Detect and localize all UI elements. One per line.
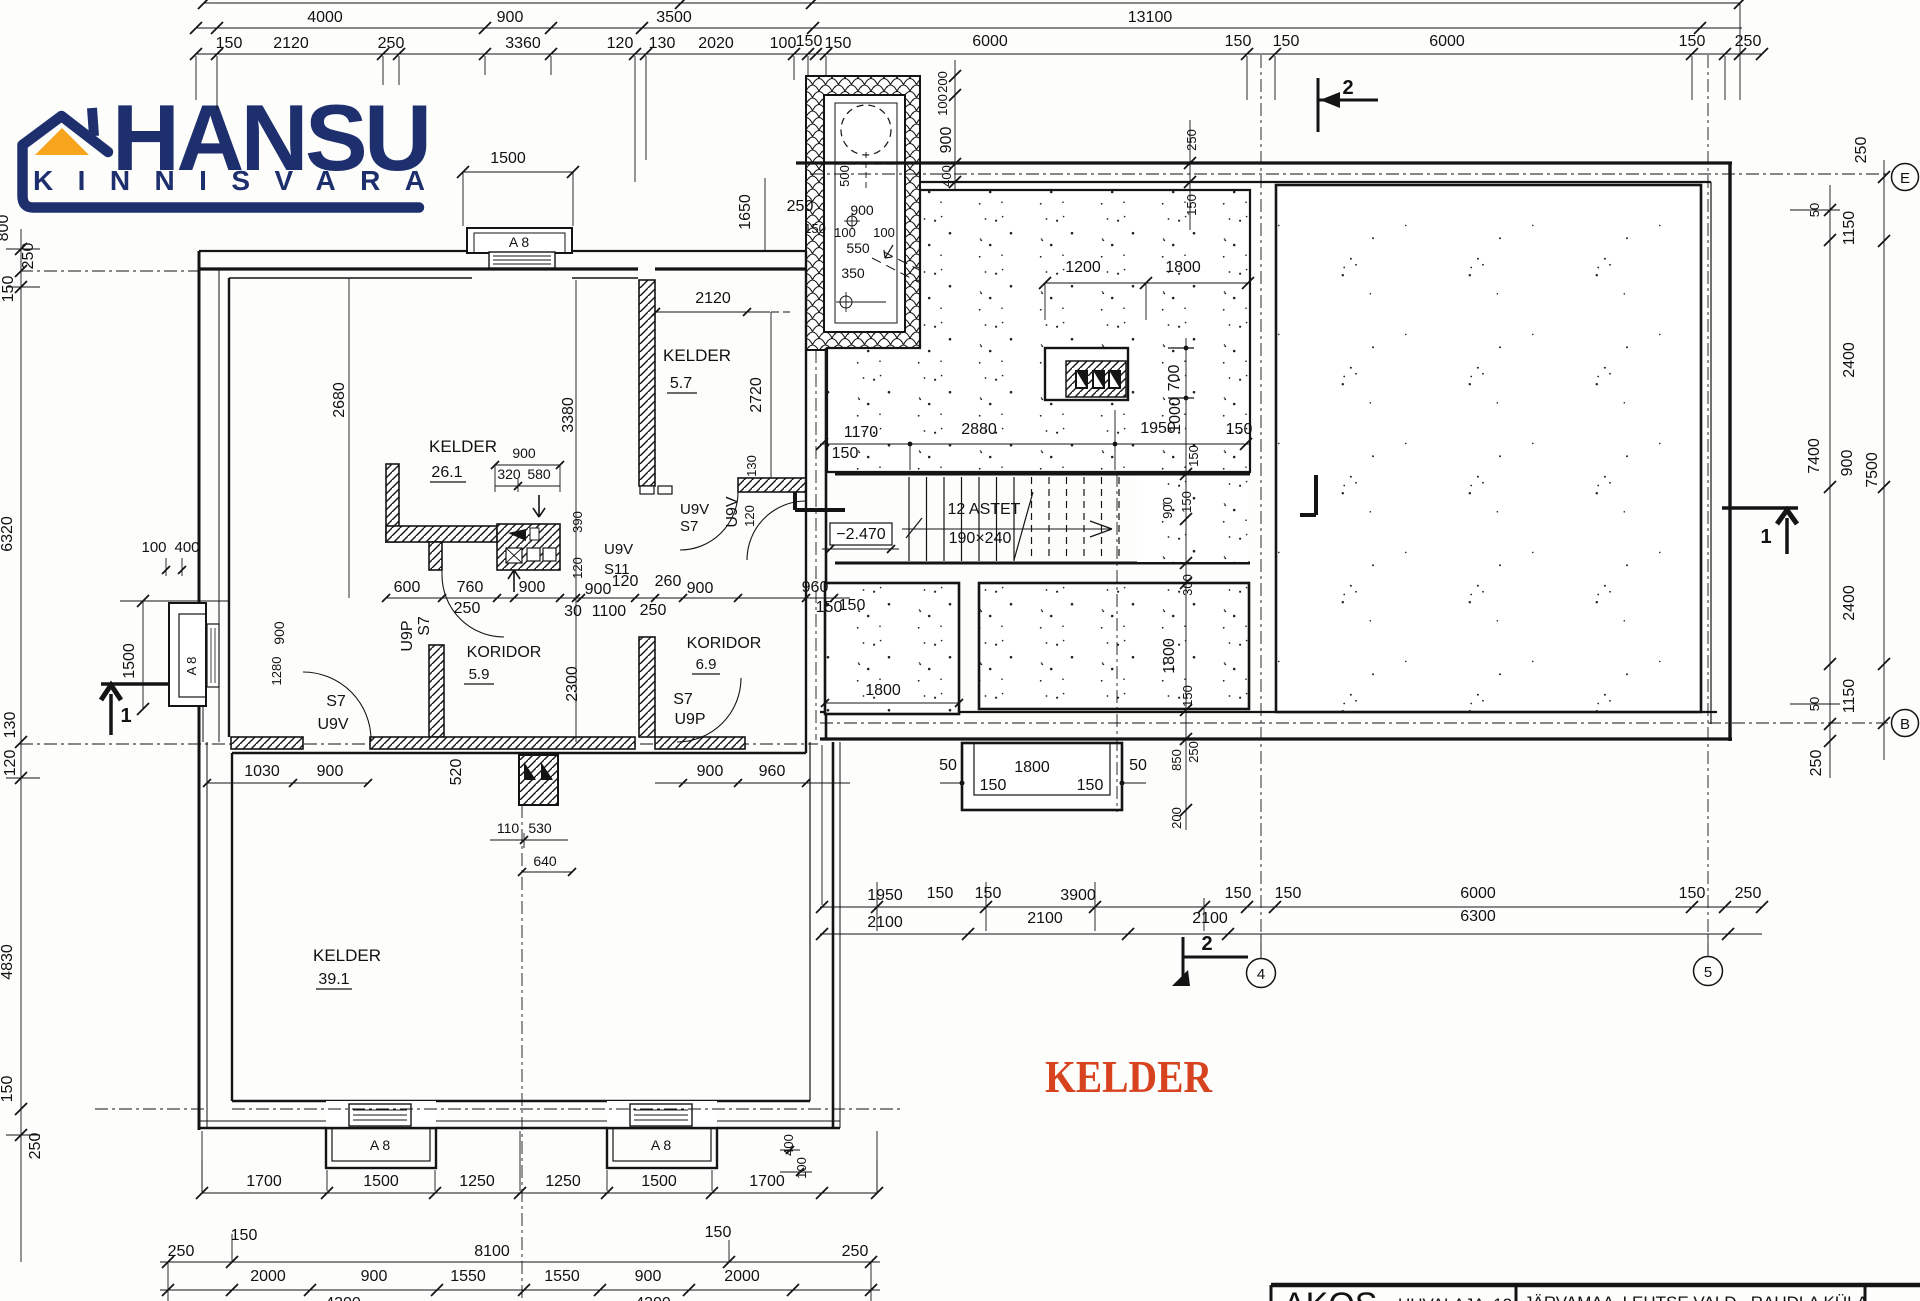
svg-text:150: 150 (231, 1227, 258, 1244)
svg-text:900: 900 (512, 445, 536, 461)
svg-text:120: 120 (742, 505, 757, 527)
svg-text:2000: 2000 (250, 1268, 286, 1285)
svg-text:2720: 2720 (748, 377, 765, 413)
svg-text:1: 1 (120, 705, 131, 727)
svg-text:1800: 1800 (1161, 638, 1178, 674)
svg-text:960: 960 (759, 763, 786, 780)
svg-text:KELDER: KELDER (313, 946, 381, 965)
svg-text:3900: 3900 (1060, 887, 1096, 904)
svg-text:760: 760 (457, 579, 484, 596)
svg-text:2100: 2100 (1192, 910, 1228, 927)
svg-text:150: 150 (1186, 445, 1201, 467)
svg-text:6320: 6320 (0, 516, 16, 552)
svg-text:2400: 2400 (1841, 585, 1858, 621)
svg-text:300: 300 (1180, 574, 1195, 596)
svg-text:260: 260 (655, 573, 682, 590)
svg-text:2120: 2120 (273, 35, 309, 52)
svg-text:130: 130 (649, 35, 676, 52)
svg-text:120: 120 (612, 573, 639, 590)
svg-text:150: 150 (0, 1076, 16, 1103)
svg-text:120: 120 (607, 35, 634, 52)
svg-text:190×240: 190×240 (949, 530, 1012, 547)
svg-text:150: 150 (1077, 777, 1104, 794)
svg-text:500: 500 (837, 165, 852, 187)
svg-text:250: 250 (1184, 129, 1199, 151)
svg-text:50: 50 (939, 757, 957, 774)
svg-text:900: 900 (687, 580, 714, 597)
svg-text:4300: 4300 (635, 1295, 671, 1301)
svg-text:520: 520 (448, 759, 465, 786)
svg-text:800: 800 (0, 215, 12, 242)
svg-text:250: 250 (168, 1243, 195, 1260)
svg-text:150: 150 (1225, 885, 1252, 902)
svg-text:4000: 4000 (307, 9, 343, 26)
svg-text:2: 2 (1201, 933, 1212, 955)
svg-text:1150: 1150 (1841, 211, 1858, 246)
svg-text:150: 150 (705, 1224, 732, 1241)
svg-text:12 ASTET: 12 ASTET (948, 501, 1021, 518)
svg-text:1800: 1800 (1014, 759, 1050, 776)
svg-text:1550: 1550 (544, 1268, 580, 1285)
svg-text:900: 900 (850, 202, 874, 218)
svg-text:250: 250 (1735, 33, 1762, 50)
svg-text:320: 320 (497, 466, 521, 482)
svg-text:A 8: A 8 (184, 657, 199, 676)
svg-text:7400: 7400 (1806, 438, 1823, 474)
svg-text:200: 200 (935, 71, 950, 93)
svg-text:250: 250 (378, 35, 405, 52)
svg-text:2100: 2100 (867, 914, 903, 931)
svg-text:S7: S7 (680, 518, 698, 535)
svg-text:B: B (1900, 716, 1910, 733)
svg-text:1200: 1200 (1065, 259, 1101, 276)
svg-text:150: 150 (1273, 33, 1300, 50)
svg-text:100: 100 (873, 225, 895, 240)
svg-text:250: 250 (842, 1243, 869, 1260)
svg-text:2: 2 (1342, 77, 1353, 99)
svg-text:900: 900 (938, 127, 955, 154)
svg-text:100: 100 (770, 35, 797, 52)
svg-text:150: 150 (1180, 685, 1195, 707)
svg-text:1800: 1800 (1165, 259, 1201, 276)
svg-text:150: 150 (832, 445, 859, 462)
svg-text:1700: 1700 (246, 1173, 282, 1190)
svg-text:U9V: U9V (680, 501, 709, 518)
svg-text:KORIDOR: KORIDOR (467, 644, 542, 661)
svg-text:50: 50 (1129, 757, 1147, 774)
svg-text:U9P: U9P (674, 711, 705, 728)
svg-text:530: 530 (528, 820, 552, 836)
svg-text:250: 250 (787, 198, 814, 215)
svg-text:1280: 1280 (269, 657, 284, 686)
svg-text:S7: S7 (673, 691, 693, 708)
svg-text:1030: 1030 (244, 763, 280, 780)
svg-text:150: 150 (1179, 491, 1194, 513)
svg-text:1800: 1800 (865, 682, 901, 699)
svg-text:3360: 3360 (505, 35, 541, 52)
svg-text:U9P: U9P (399, 620, 416, 651)
svg-text:900: 900 (1839, 450, 1856, 477)
svg-text:5.7: 5.7 (670, 375, 692, 392)
svg-text:900: 900 (697, 763, 724, 780)
svg-text:250: 250 (1186, 741, 1201, 763)
svg-text:150: 150 (1679, 33, 1706, 50)
svg-text:150: 150 (839, 597, 866, 614)
svg-text:6300: 6300 (1460, 908, 1496, 925)
svg-text:900: 900 (361, 1268, 388, 1285)
svg-text:400: 400 (939, 165, 954, 187)
svg-text:4: 4 (1257, 966, 1265, 983)
svg-text:1500: 1500 (363, 1173, 399, 1190)
svg-text:AKOS: AKOS (1283, 1286, 1377, 1301)
svg-text:150: 150 (216, 35, 243, 52)
svg-text:100: 100 (834, 225, 856, 240)
svg-text:1170: 1170 (844, 424, 879, 441)
svg-text:KORIDOR: KORIDOR (687, 635, 762, 652)
svg-text:1500: 1500 (641, 1173, 677, 1190)
svg-text:640: 640 (533, 853, 557, 869)
svg-text:6000: 6000 (1429, 33, 1465, 50)
svg-text:A 8: A 8 (651, 1137, 671, 1153)
svg-text:2100: 2100 (1027, 910, 1063, 927)
svg-text:150: 150 (804, 221, 826, 236)
svg-text:100: 100 (141, 539, 166, 556)
svg-text:3380: 3380 (560, 397, 577, 433)
svg-text:150: 150 (1275, 885, 1302, 902)
svg-text:580: 580 (527, 466, 551, 482)
svg-text:8100: 8100 (474, 1243, 510, 1260)
svg-text:900: 900 (271, 621, 287, 645)
svg-text:KELDER: KELDER (1045, 1051, 1213, 1102)
svg-text:1500: 1500 (490, 150, 526, 167)
svg-text:150: 150 (796, 33, 823, 50)
svg-text:900: 900 (635, 1268, 662, 1285)
svg-text:1250: 1250 (459, 1173, 495, 1190)
svg-text:6.9: 6.9 (696, 656, 717, 673)
svg-text:U9V: U9V (724, 496, 741, 527)
svg-text:120: 120 (570, 557, 585, 579)
svg-text:5.9: 5.9 (469, 666, 490, 683)
svg-text:250: 250 (20, 243, 37, 270)
svg-text:2300: 2300 (564, 666, 581, 702)
svg-text:150: 150 (825, 35, 852, 52)
svg-text:100: 100 (935, 94, 950, 116)
svg-text:150: 150 (1679, 885, 1706, 902)
svg-text:850: 850 (1169, 749, 1184, 771)
svg-text:110: 110 (497, 820, 520, 836)
svg-text:1500: 1500 (121, 643, 138, 679)
svg-text:250: 250 (1808, 750, 1825, 777)
svg-text:KELDER: KELDER (663, 346, 731, 365)
svg-text:600: 600 (394, 579, 421, 596)
svg-text:250: 250 (454, 600, 481, 617)
svg-text:6000: 6000 (972, 33, 1008, 50)
svg-text:130: 130 (744, 455, 759, 477)
svg-text:26.1: 26.1 (431, 464, 462, 481)
svg-text:2000: 2000 (724, 1268, 760, 1285)
svg-text:250: 250 (27, 1133, 44, 1160)
svg-text:900: 900 (519, 579, 546, 596)
svg-text:6000: 6000 (1460, 885, 1496, 902)
svg-text:150: 150 (0, 276, 17, 303)
svg-text:13100: 13100 (1128, 9, 1173, 26)
svg-text:150: 150 (1226, 421, 1253, 438)
svg-text:390: 390 (570, 511, 585, 533)
svg-text:150: 150 (927, 885, 954, 902)
svg-text:2880: 2880 (961, 421, 997, 438)
svg-text:250: 250 (1853, 137, 1870, 164)
svg-text:S7: S7 (416, 616, 433, 636)
svg-text:S7: S7 (326, 693, 346, 710)
svg-text:E: E (1900, 170, 1910, 187)
svg-text:150: 150 (1184, 194, 1199, 216)
svg-text:150: 150 (1225, 33, 1252, 50)
svg-text:A 8: A 8 (370, 1137, 390, 1153)
svg-text:A 8: A 8 (509, 234, 529, 250)
svg-text:U9V: U9V (604, 541, 633, 558)
svg-text:2680: 2680 (331, 382, 348, 418)
svg-text:1100: 1100 (592, 603, 627, 620)
svg-text:KELDER: KELDER (429, 437, 497, 456)
svg-text:4300: 4300 (325, 1295, 361, 1301)
svg-text:150: 150 (975, 885, 1002, 902)
svg-text:2400: 2400 (1841, 342, 1858, 378)
svg-text:2020: 2020 (698, 35, 734, 52)
svg-text:4830: 4830 (0, 944, 16, 980)
svg-text:700: 700 (1166, 365, 1183, 392)
svg-text:900: 900 (585, 581, 612, 598)
svg-text:250: 250 (640, 602, 667, 619)
svg-text:1700: 1700 (749, 1173, 785, 1190)
svg-text:1950: 1950 (1140, 420, 1176, 437)
svg-text:39.1: 39.1 (318, 971, 349, 988)
svg-text:1: 1 (1760, 526, 1771, 548)
svg-text:30: 30 (564, 603, 582, 620)
svg-text:UUVALAJA 12: UUVALAJA 12 (1398, 1295, 1512, 1301)
svg-text:250: 250 (1735, 885, 1762, 902)
svg-text:1250: 1250 (545, 1173, 581, 1190)
svg-text:400: 400 (174, 539, 199, 556)
svg-text:1650: 1650 (737, 194, 754, 230)
svg-text:900: 900 (317, 763, 344, 780)
svg-text:1950: 1950 (867, 887, 903, 904)
svg-text:130: 130 (2, 712, 19, 739)
svg-text:3500: 3500 (656, 9, 692, 26)
svg-text:1550: 1550 (450, 1268, 486, 1285)
svg-text:120: 120 (2, 750, 19, 777)
svg-text:200: 200 (1169, 807, 1184, 829)
svg-text:5: 5 (1704, 964, 1712, 981)
svg-text:U9V: U9V (317, 716, 348, 733)
svg-text:550: 550 (846, 240, 870, 256)
svg-text:350: 350 (841, 265, 865, 281)
svg-text:JÄRVAMAA LEHTSE VALD. RAUDLA: JÄRVAMAA LEHTSE VALD. RAUDLA KÜLA (1524, 1293, 1869, 1301)
svg-text:2120: 2120 (695, 290, 731, 307)
svg-text:−2.470: −2.470 (836, 526, 885, 543)
svg-text:900: 900 (1160, 497, 1175, 519)
svg-text:7500: 7500 (1864, 452, 1881, 488)
svg-text:1150: 1150 (1841, 679, 1858, 714)
svg-text:900: 900 (497, 9, 524, 26)
svg-text:150: 150 (980, 777, 1007, 794)
